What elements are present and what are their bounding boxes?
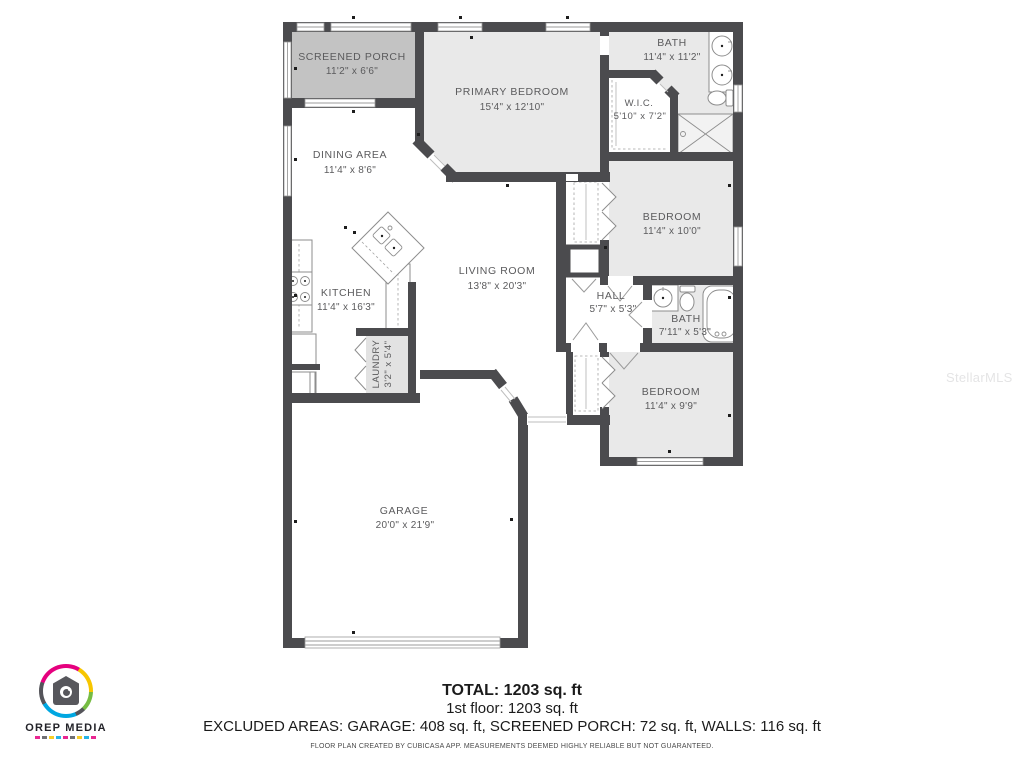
primary-closet-opening (566, 174, 578, 181)
dims-screened-porch: 11'2" x 6'6" (326, 66, 378, 77)
dims-dining: 11'4" x 8'6" (324, 165, 376, 176)
label-hall: HALL (597, 290, 626, 302)
window (546, 23, 590, 31)
total-area-text: TOTAL: 1203 sq. ft (0, 682, 1024, 700)
label-bath2: BATH (671, 313, 701, 325)
label-bedroom2: BEDROOM (642, 386, 700, 398)
kitchen-island (352, 212, 424, 284)
toilet (680, 286, 695, 311)
dims-laundry: 3'2" x 5'4" (383, 340, 394, 387)
dims-wic: 5'10" x 7'2" (614, 111, 667, 122)
hall-linen-closet (568, 247, 601, 275)
garage-door (305, 637, 500, 648)
dims-bath2: 7'11" x 5'3" (659, 327, 711, 338)
excluded-areas-text: EXCLUDED AREAS: GARAGE: 408 sq. ft, SCRE… (0, 718, 1024, 736)
toilet (708, 90, 733, 106)
garage-angle-stub (513, 399, 524, 417)
label-living: LIVING ROOM (459, 265, 536, 277)
dims-bedroom1: 11'4" x 10'0" (643, 226, 701, 237)
window (284, 42, 291, 98)
bath1-door (600, 36, 609, 55)
dims-kitchen: 11'4" x 16'3" (317, 302, 375, 313)
wic-angle-stub (652, 73, 660, 81)
dims-living: 13'8" x 20'3" (468, 281, 527, 292)
bath2-door (643, 300, 652, 328)
label-wic: W.I.C. (625, 98, 654, 109)
garage-angle-stub (492, 372, 503, 386)
shower (678, 114, 733, 154)
logo-aperture-icon (39, 664, 93, 718)
bedroom2-door (607, 343, 640, 352)
label-primary-bedroom: PRIMARY BEDROOM (455, 86, 569, 98)
bedroom1-door (608, 276, 633, 285)
area-summary: TOTAL: 1203 sq. ft 1st floor: 1203 sq. f… (0, 682, 1024, 750)
window (734, 227, 742, 266)
dims-bath1: 11'4" x 11'2" (643, 52, 700, 63)
label-screened-porch: SCREENED PORCH (298, 51, 406, 63)
window (297, 23, 324, 31)
floor-plan-page: { "colors": { "wall": "#4b4b4e", "room":… (0, 0, 1024, 768)
mls-watermark: StellarMLS (946, 370, 1024, 385)
label-dining: DINING AREA (313, 149, 387, 161)
orep-media-logo: OREP MEDIA (20, 664, 112, 739)
window (438, 23, 482, 31)
logo-tagline (35, 736, 97, 739)
dims-bedroom2: 11'4" x 9'9" (645, 401, 697, 412)
floor-plan-drawing: SCREENED PORCH 11'2" x 6'6" PRIMARY BEDR… (0, 0, 1024, 768)
label-kitchen: KITCHEN (321, 287, 371, 299)
camera-house-icon (53, 676, 79, 705)
label-garage: GARAGE (380, 505, 429, 517)
dims-hall: 5'7" x 5'3" (589, 304, 636, 315)
window (305, 99, 375, 107)
dims-garage: 20'0" x 21'9" (376, 520, 435, 531)
label-laundry-group: LAUNDRY 3'2" x 5'4" (371, 339, 394, 388)
closet-bedroom2 (573, 354, 600, 413)
wic-angle-stub (668, 89, 676, 97)
pantry-door (310, 372, 315, 394)
laundry-bifold (355, 366, 366, 390)
window (284, 126, 291, 196)
label-bath1: BATH (657, 37, 687, 49)
window (331, 23, 411, 31)
disclaimer-text: FLOOR PLAN CREATED BY CUBICASA APP. MEAS… (0, 743, 1024, 750)
window (734, 85, 742, 112)
dims-primary-bedroom: 15'4" x 12'10" (480, 102, 545, 113)
first-floor-area-text: 1st floor: 1203 sq. ft (0, 700, 1024, 718)
laundry-bifold (355, 338, 366, 362)
window (637, 458, 703, 465)
closet-primary-bedroom1 (572, 180, 600, 244)
logo-brand-text: OREP MEDIA (20, 722, 112, 734)
hall-entry-opening (571, 343, 599, 352)
label-bedroom1: BEDROOM (643, 211, 701, 223)
front-door (527, 414, 567, 425)
label-laundry: LAUNDRY (371, 339, 382, 388)
camera-lens-icon (60, 686, 72, 698)
